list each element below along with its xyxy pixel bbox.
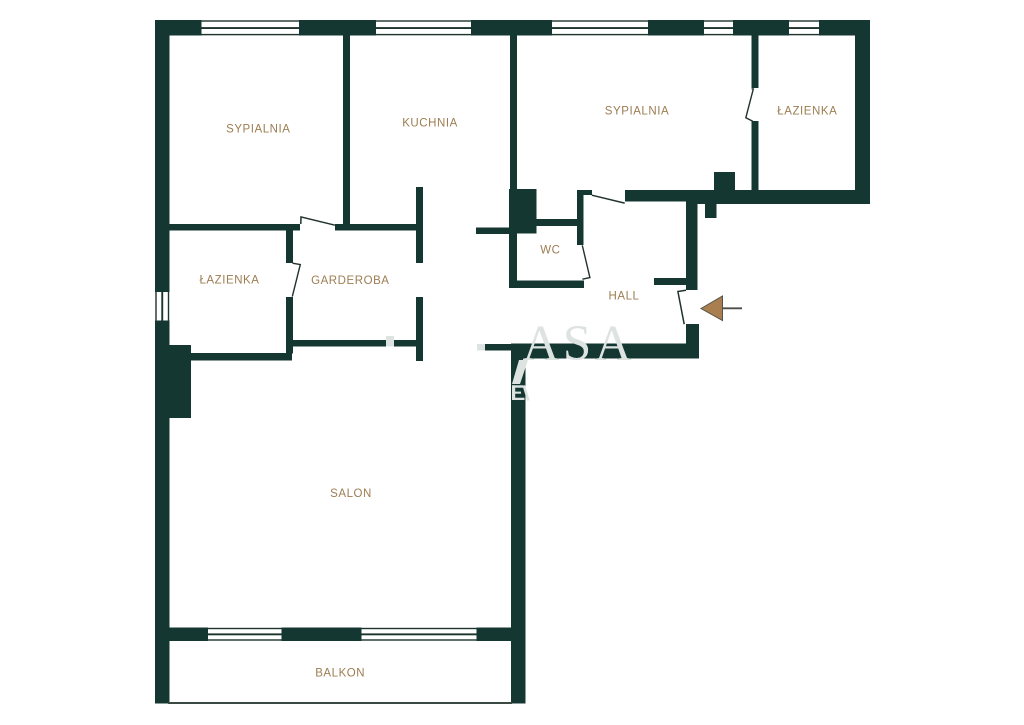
svg-text:WC: WC — [540, 244, 560, 256]
svg-text:KUCHNIA: KUCHNIA — [402, 118, 458, 130]
svg-text:HALL: HALL — [609, 291, 640, 303]
svg-text:SALON: SALON — [330, 488, 372, 500]
svg-text:ASA: ASA — [523, 316, 636, 372]
svg-text:GARDEROBA: GARDEROBA — [311, 275, 389, 287]
svg-text:SYPIALNIA: SYPIALNIA — [605, 105, 669, 117]
svg-text:ŁAZIENKA: ŁAZIENKA — [777, 106, 837, 118]
svg-text:SYPIALNIA: SYPIALNIA — [226, 124, 290, 136]
svg-text:BALKON: BALKON — [315, 668, 365, 680]
svg-text:ŁAZIENKA: ŁAZIENKA — [199, 275, 259, 287]
